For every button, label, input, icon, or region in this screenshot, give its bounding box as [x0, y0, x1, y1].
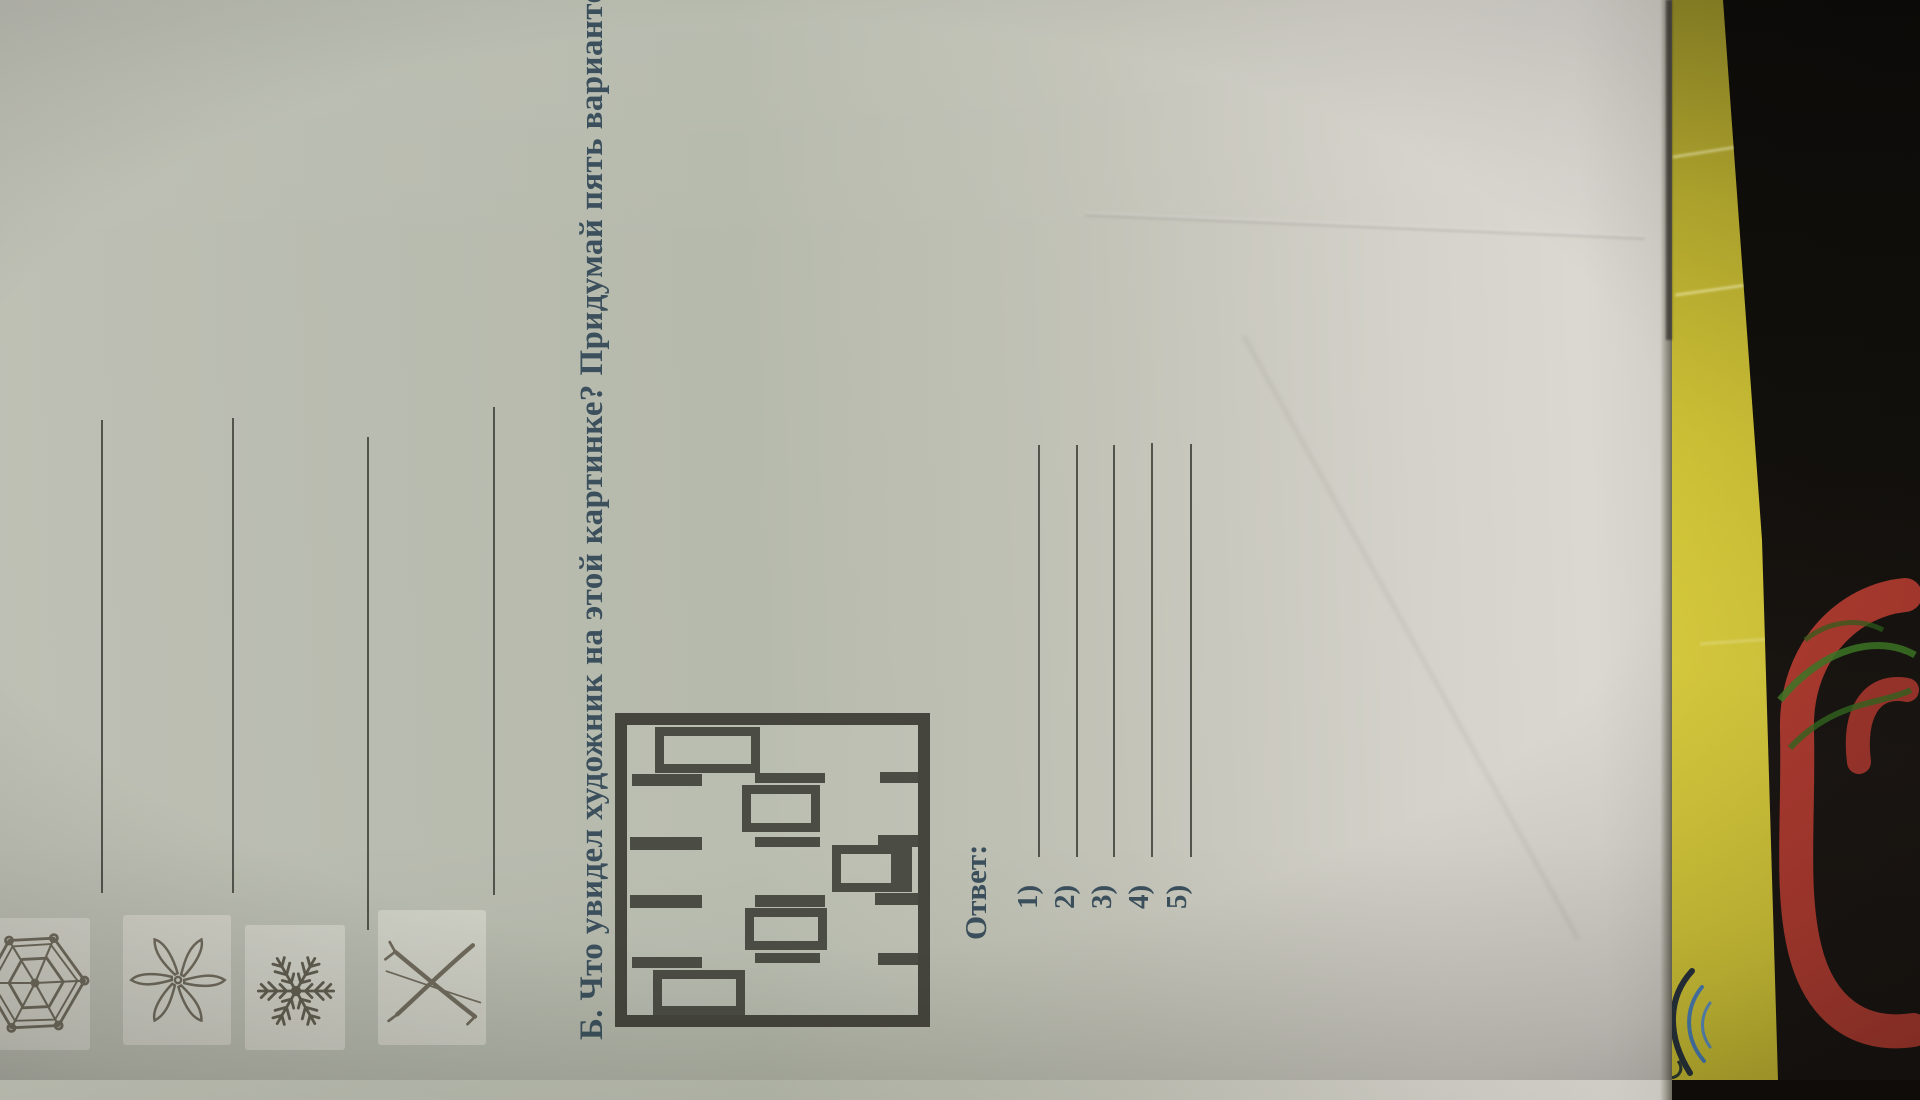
picture-dash [880, 772, 928, 783]
feathery-snowflake-icon [249, 944, 343, 1038]
abstract-picture-frame [615, 713, 930, 1027]
picture-dash [755, 837, 820, 847]
photo-of-workbook-page: { "worksheet": { "snowflake_task": { "ro… [0, 0, 1920, 1080]
folder-crease [1675, 282, 1755, 296]
worksheet-paper: Б. Что увидел художник на этой картинке?… [0, 0, 1672, 1100]
answer-blank-line [1113, 445, 1115, 857]
picture-rectangle [655, 727, 760, 773]
picture-dash [630, 895, 702, 908]
snowflake-answer-line [367, 437, 369, 930]
snowflake-answer-line [232, 418, 234, 893]
picture-rectangle [745, 908, 827, 950]
answer-item-number: 1) [1012, 885, 1045, 909]
answer-blank-line [1076, 445, 1078, 857]
snowflake-answer-line [493, 407, 495, 895]
picture-dash [630, 837, 702, 850]
answers-label: Ответ: [958, 845, 994, 940]
paper-edge-shadow [1666, 0, 1672, 340]
folder-crease [1672, 144, 1744, 158]
answer-blank-line [1151, 443, 1153, 857]
picture-dash [755, 773, 825, 783]
hexagon-web-snowflake-icon [0, 924, 94, 1042]
folder-crease [1700, 638, 1770, 646]
picture-step [900, 835, 912, 892]
answer-item-number: 5) [1161, 885, 1194, 909]
picture-rectangle [832, 845, 900, 892]
picture-rectangle [742, 785, 820, 832]
picture-step [878, 835, 918, 847]
answer-item-number: 4) [1123, 885, 1156, 909]
crossed-sticks-snowflake-icon [380, 928, 488, 1036]
picture-rectangle [653, 970, 745, 1015]
answer-blank-line [1038, 445, 1040, 857]
answer-item-number: 3) [1086, 885, 1119, 909]
picture-dash [632, 957, 702, 968]
picture-dash [755, 953, 820, 963]
snowflake-answer-line [101, 420, 103, 893]
picture-dash [632, 774, 702, 786]
picture-dash [755, 895, 825, 907]
answer-blank-line [1190, 444, 1192, 857]
answer-item-number: 2) [1049, 885, 1082, 909]
propeller-snowflake-icon [126, 928, 230, 1032]
picture-dash [875, 893, 925, 905]
task-b-heading: Б. Что увидел художник на этой картинке?… [574, 0, 611, 1040]
picture-dash [878, 953, 918, 965]
